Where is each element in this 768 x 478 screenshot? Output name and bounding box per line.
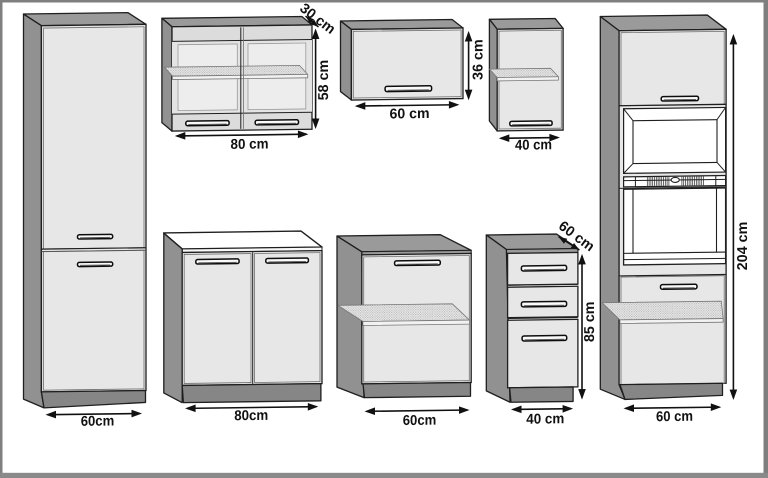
svg-text:36 cm: 36 cm (470, 39, 486, 80)
svg-text:85 cm: 85 cm (582, 301, 598, 342)
svg-text:40 cm: 40 cm (526, 411, 564, 427)
svg-text:60cm: 60cm (403, 413, 437, 429)
svg-text:204 cm: 204 cm (735, 222, 751, 271)
svg-text:60cm: 60cm (81, 413, 115, 429)
svg-text:80 cm: 80 cm (231, 136, 269, 152)
svg-text:60 cm: 60 cm (390, 106, 430, 123)
svg-text:58 cm: 58 cm (316, 60, 332, 101)
svg-text:80cm: 80cm (234, 408, 268, 424)
svg-text:40 cm: 40 cm (515, 137, 552, 153)
svg-text:60 cm: 60 cm (656, 409, 693, 425)
